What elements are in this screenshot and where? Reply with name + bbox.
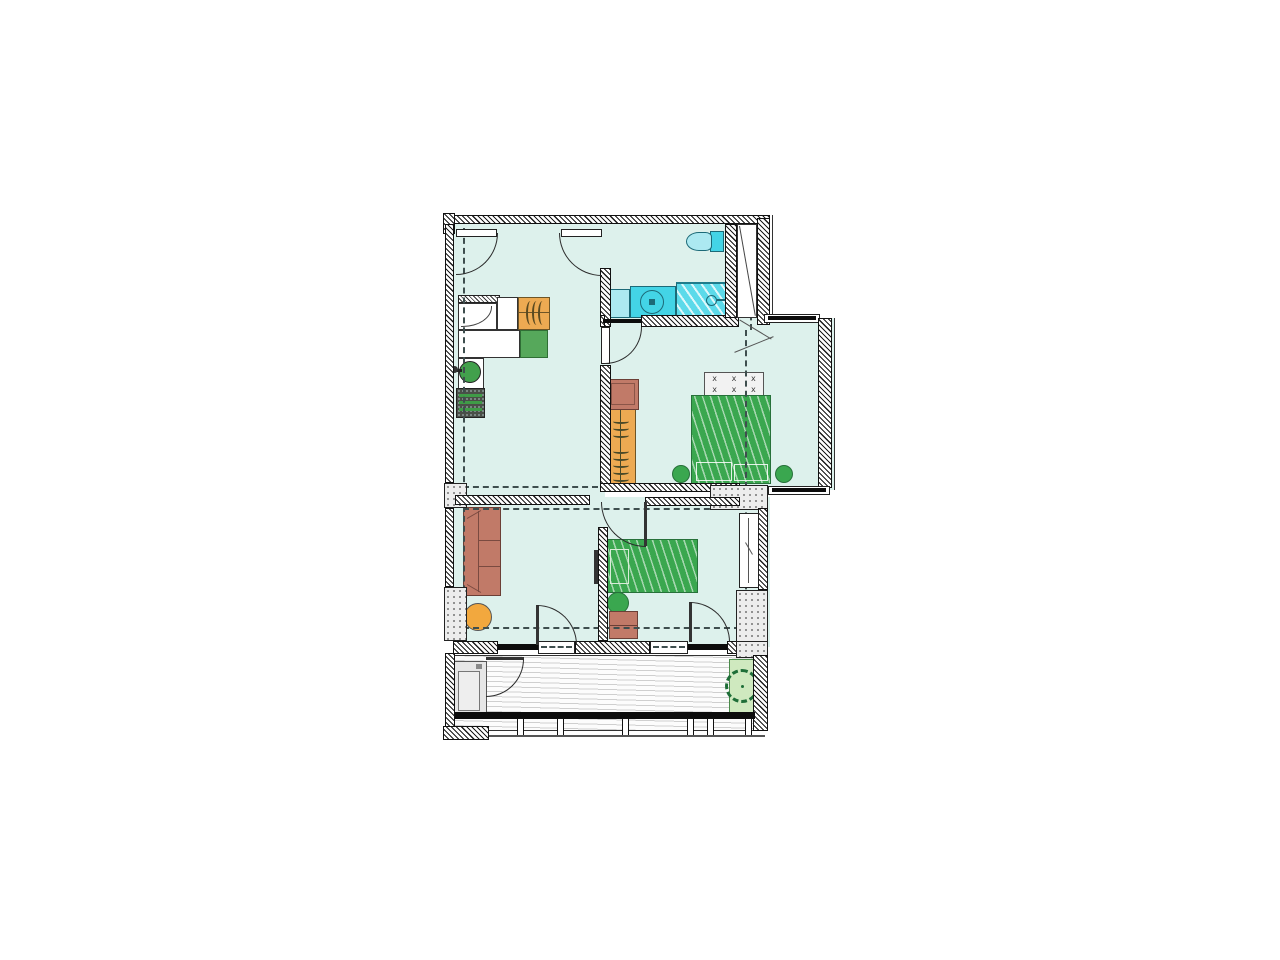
dishwasher — [520, 330, 548, 358]
bathroom-door-threshold — [603, 319, 642, 323]
wall-living-bedroom — [598, 527, 608, 641]
hanger-icon — [613, 456, 629, 461]
wall-face-line — [772, 215, 773, 318]
washing-machine-dot-icon — [649, 299, 655, 305]
sofa-cushion-line — [479, 566, 500, 567]
window-dash — [653, 646, 685, 648]
sofa — [463, 507, 501, 596]
hanger-icon — [613, 426, 629, 431]
double-bed-blanket — [696, 462, 732, 481]
balcony-cabinet-shelf — [458, 671, 480, 711]
wall-balcony-left — [445, 653, 455, 728]
window-dash — [541, 646, 572, 648]
bedroom-bottom-window-bar — [772, 488, 826, 492]
nightstand-line — [610, 625, 637, 626]
dashed-line — [463, 486, 598, 488]
wall-balcony-right — [753, 655, 768, 731]
wall-bathroom-right — [725, 224, 737, 318]
wall-right-mid — [758, 508, 768, 590]
wall-single-bedroom-top — [645, 497, 740, 506]
hanger-icon — [613, 470, 629, 475]
balcony-bottom-line — [489, 735, 765, 737]
hanger-icon — [613, 433, 629, 438]
wall-bottom — [453, 641, 498, 654]
balcony-door-threshold — [498, 644, 538, 650]
hanger-icon — [613, 419, 629, 424]
hanger-icon — [613, 463, 629, 468]
pouf — [775, 465, 793, 483]
toilet-tank — [710, 231, 724, 252]
column — [736, 590, 768, 645]
sofa-back-line — [478, 511, 479, 592]
wall-bedroom-right — [818, 318, 832, 488]
wall-shaft-right — [757, 218, 770, 325]
wall-face-line — [834, 318, 835, 490]
wall-bottom — [575, 641, 650, 654]
kitchen-counter-2 — [458, 330, 520, 358]
pouf — [672, 465, 690, 483]
bedroom-top-window-bar — [768, 316, 816, 320]
balcony-door-threshold — [688, 644, 727, 650]
wall-left — [445, 224, 454, 483]
wall-top — [449, 215, 770, 224]
planter-tree-dot — [741, 685, 744, 688]
wardrobe-top-cabinet-line — [611, 383, 635, 405]
wall-balcony-corner — [443, 726, 489, 740]
hanger-icon — [613, 477, 629, 482]
toilet-bowl — [686, 232, 712, 251]
dashed-line — [463, 228, 465, 641]
dish-rack-icon — [538, 301, 547, 325]
double-bed-blanket — [734, 464, 768, 481]
wall-living-top — [455, 495, 590, 505]
single-bed-pillow — [610, 549, 629, 584]
kitchen-counter — [497, 297, 518, 330]
floor-plan: xxx xxx — [0, 0, 1280, 960]
column — [444, 587, 467, 641]
double-bed-pillow-shelf: xxx xxx — [704, 372, 764, 396]
wall-left — [445, 508, 454, 587]
wall-hall-bedroom — [600, 365, 611, 487]
shower-faucet-icon — [706, 295, 717, 306]
sofa-cushion-line — [479, 540, 500, 541]
hanger-icon — [613, 449, 629, 454]
balcony-cabinet-handle — [476, 664, 482, 669]
